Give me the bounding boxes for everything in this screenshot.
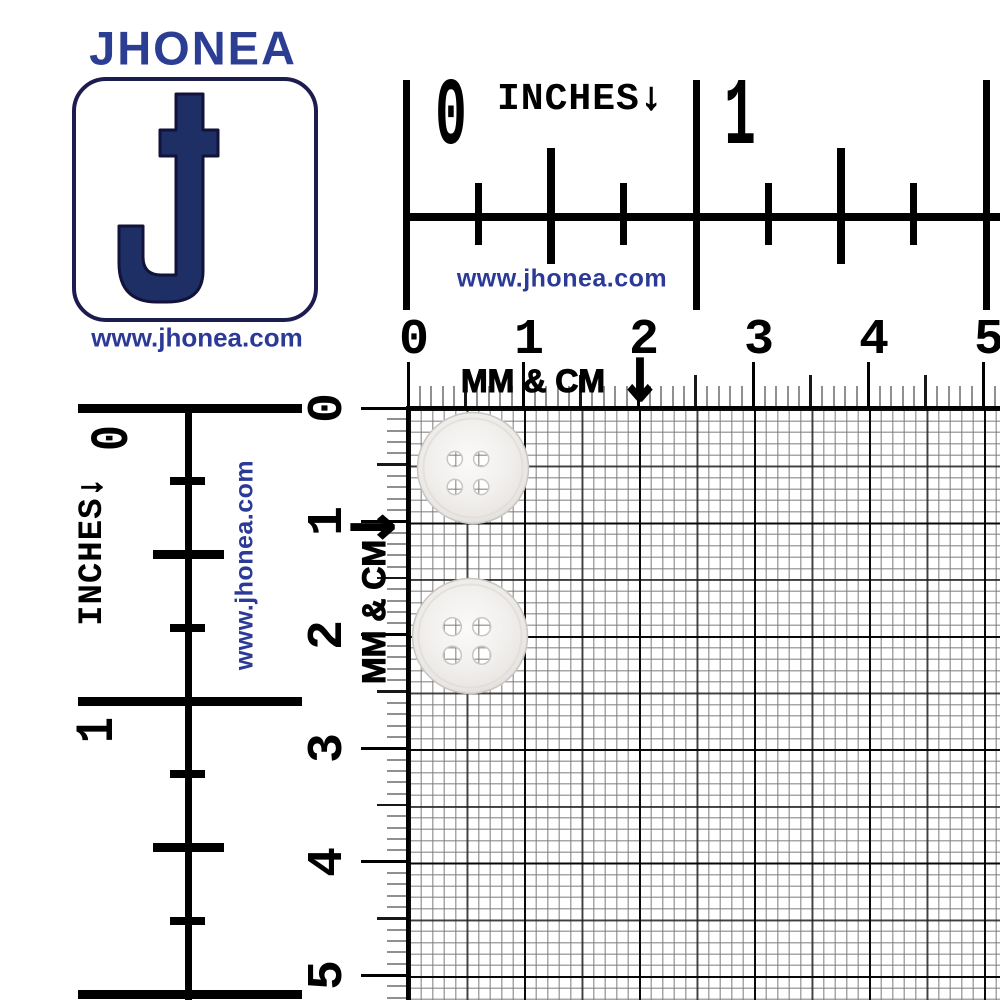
ruler-tick [387,872,406,874]
ruler-tick [170,624,205,632]
ruler-tick [614,386,616,406]
ruler-number: 2 [629,316,659,366]
ruler-number: 3 [304,733,354,763]
brand-logo-box [72,77,318,322]
ruler-tick [387,736,406,738]
ruler-tick [430,386,432,406]
ruler-tick [798,386,800,406]
ruler-tick [856,386,858,406]
ruler-tick [693,80,700,310]
ruler-tick [910,183,917,245]
ruler-tick [706,386,708,406]
ruler-tick [78,404,302,413]
ruler-tick [787,386,789,406]
inches-top-label: INCHES↓ [497,81,664,119]
ruler-tick [924,375,927,406]
ruler-tick [387,781,406,783]
ruler-number: 1 [514,316,544,366]
ruler-tick [672,386,674,406]
ruler-tick [387,759,406,761]
ruler-number: 4 [859,316,889,366]
ruler-tick [387,951,406,953]
mm-left-label: MM & CM [358,540,390,684]
ruler-tick [78,697,302,706]
ruler-number: 3 [744,316,774,366]
ruler-tick [913,386,915,406]
ruler-tick [453,386,455,406]
mm-top-label: MM & CM [461,365,605,397]
ruler-tick [936,386,938,406]
ruler-number: 0 [87,425,141,451]
ruler-tick [833,386,835,406]
ruler-tick [419,386,421,406]
ruler-tick [844,386,846,406]
ruler-tick [683,386,685,406]
ruler-tick [170,770,205,778]
ruler-tick [387,838,406,840]
ruler-tick [765,183,772,245]
ruler-tick [890,386,892,406]
ruler-tick [387,883,406,885]
ruler-tick [387,985,406,987]
ruler-tick [959,386,961,406]
ruler-tick [475,183,482,245]
ruler-number: 5 [974,316,1000,366]
inches-top-url: www.jhonea.com [457,267,667,292]
ruler-tick [387,849,406,851]
ruler-tick [387,895,406,897]
ruler-number: 2 [304,620,354,650]
ruler-tick [775,386,777,406]
ruler-tick [387,725,406,727]
ruler-number: 0 [435,70,467,166]
ruler-tick [387,997,406,999]
ruler-tick [387,940,406,942]
ruler-tick [729,386,731,406]
ruler-tick [809,375,812,406]
ruler-number: 1 [304,506,354,536]
ruler-tick [387,929,406,931]
ruler-tick [361,860,406,863]
brand-j-icon [76,81,314,318]
ruler-tick [387,713,406,715]
inches-left-title: INCHES [74,497,112,625]
ruler-number: 4 [304,847,354,877]
ruler-tick [377,690,406,693]
down-arrow-icon: ↓ [640,78,664,121]
ruler-tick [361,974,406,977]
ruler-tick [387,475,406,477]
ruler-tick [821,386,823,406]
ruler-tick [387,827,406,829]
right-arrow-icon: ↓ [74,476,112,497]
ruler-tick [377,804,406,807]
ruler-tick [387,486,406,488]
ruler-tick [377,463,406,466]
ruler-number: 0 [399,316,429,366]
inches-left-label: INCHES↓ [76,476,110,626]
inches-top-title: INCHES [497,78,640,121]
graph-paper-grid [406,406,1000,1000]
ruler-tick [741,386,743,406]
ruler-tick [902,386,904,406]
inches-left-url: www.jhonea.com [233,460,258,670]
ruler-tick [994,386,996,406]
ruler-tick [620,183,627,245]
ruler-tick [442,386,444,406]
ruler-tick [387,702,406,704]
ruler-tick [879,386,881,406]
ruler-tick [387,906,406,908]
ruler-number: 1 [72,717,126,743]
ruler-tick [983,80,990,310]
ruler-tick [153,550,224,559]
ruler-number: 0 [304,393,354,423]
ruler-tick [387,815,406,817]
ruler-tick [387,441,406,443]
ruler-tick [387,963,406,965]
ruler-tick [387,430,406,432]
ruler-tick [170,477,205,485]
brand-url: www.jhonea.com [91,323,302,354]
ruler-tick [694,375,697,406]
ruler-tick [837,148,845,264]
ruler-tick [387,498,406,500]
ruler-tick [948,386,950,406]
ruler-tick [387,793,406,795]
ruler-tick [153,843,224,852]
brand-name: JHONEA [89,21,297,76]
ruler-tick [170,917,205,925]
ruler-tick [387,418,406,420]
ruler-tick [361,747,406,750]
ruler-tick [764,386,766,406]
ruler-tick [547,148,555,264]
ruler-tick [387,452,406,454]
ruler-tick [971,386,973,406]
ruler-tick [403,80,410,310]
ruler-tick [78,990,302,999]
ruler-tick [718,386,720,406]
ruler-tick [361,407,406,410]
ruler-number: 1 [724,70,756,166]
ruler-tick [387,770,406,772]
ruler-tick [377,917,406,920]
ruler-number: 5 [304,960,354,990]
product-photo: JHONEA www.jhonea.com INCHES↓ www.jhonea… [0,0,1000,1000]
